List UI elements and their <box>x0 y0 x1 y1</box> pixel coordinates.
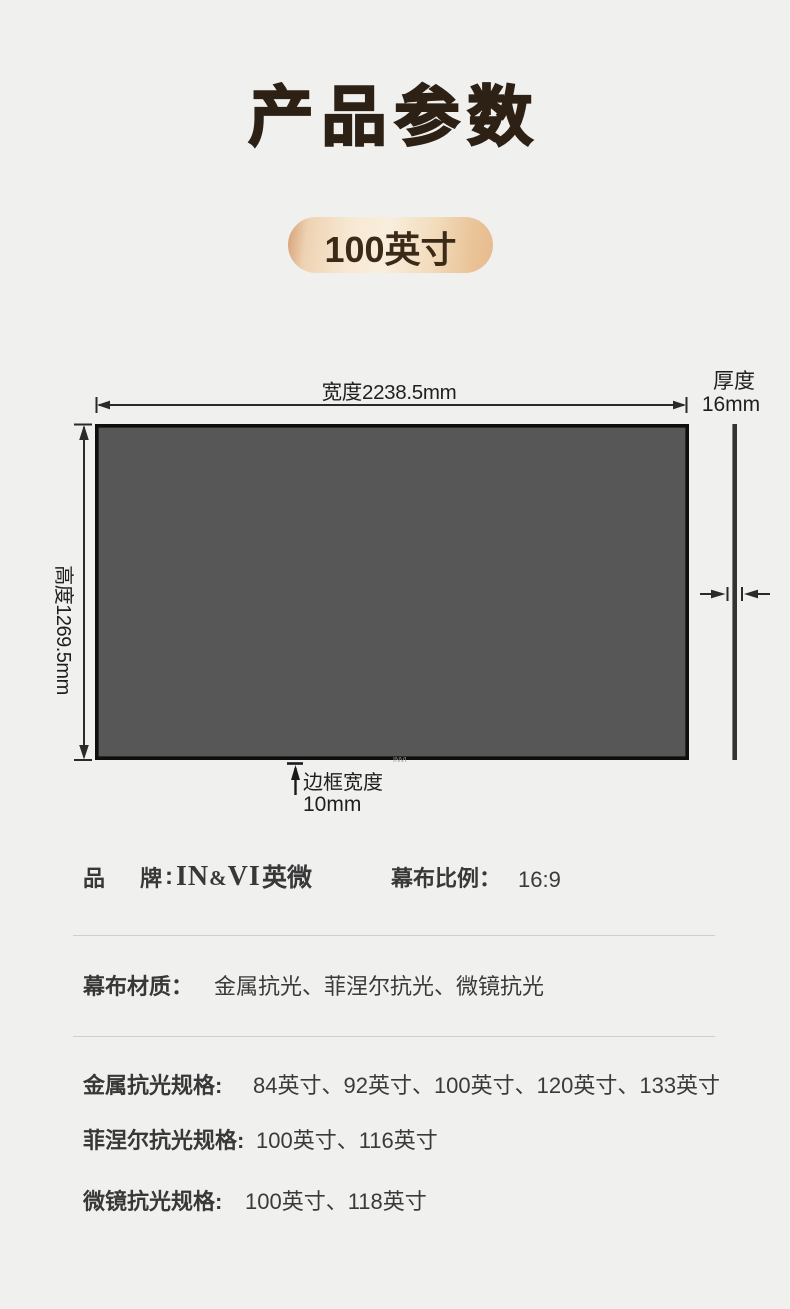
svg-text:边框宽度: 边框宽度 <box>303 771 383 794</box>
svg-text:宽度2238.5mm: 宽度2238.5mm <box>322 381 457 404</box>
svg-text:10mm: 10mm <box>303 793 361 816</box>
svg-text:厚度: 厚度 <box>713 370 755 393</box>
svg-text:16mm: 16mm <box>702 393 760 416</box>
svg-text:INVI: INVI <box>393 757 407 764</box>
svg-text:高度1269.5mm: 高度1269.5mm <box>52 565 75 695</box>
